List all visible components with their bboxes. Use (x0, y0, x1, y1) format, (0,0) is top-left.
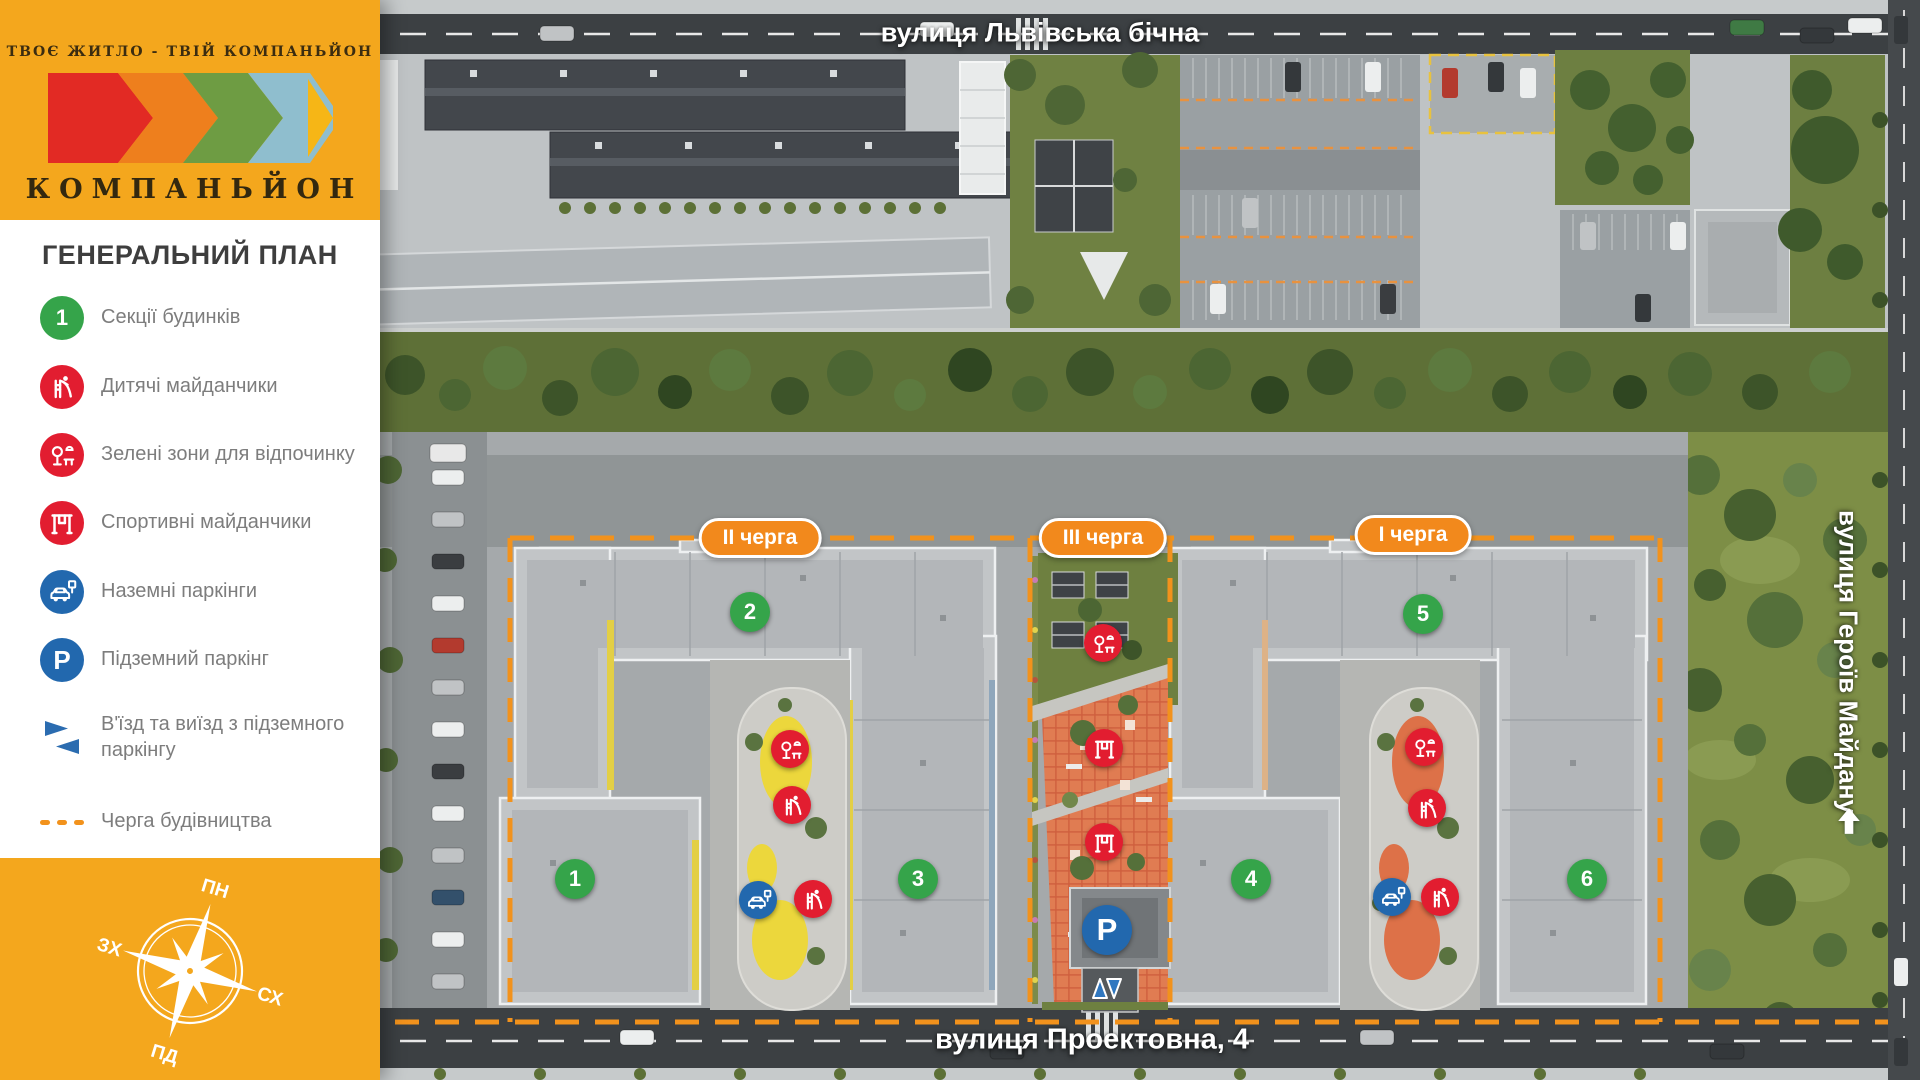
playground-icon (1408, 789, 1446, 827)
playground-icon (40, 365, 84, 409)
phase-badge-2[interactable]: II черга (699, 518, 822, 558)
building-marker-2[interactable]: 2 (730, 592, 770, 632)
building-marker-1[interactable]: 1 (555, 859, 595, 899)
legend-label: Підземний паркінг (101, 647, 269, 673)
compass-east-label: СХ (255, 983, 286, 1011)
street-label-proektovna: вулиця Проектовна, 4 (935, 1024, 1249, 1057)
building-marker-6[interactable]: 6 (1567, 859, 1607, 899)
legend-item-sections: 1 Секції будинків (40, 296, 364, 340)
street-label-heroiv-maidanu: вулиця Героїв Майдану (1833, 510, 1864, 814)
playground-icon (1421, 878, 1459, 916)
green-zone-icon (1405, 728, 1443, 766)
green-zone-icon (771, 730, 809, 768)
compass-west-label: ЗХ (94, 934, 124, 961)
brand-tagline: ТВОЄ ЖИТЛО - ТВІЙ КОМПАНЬЙОН (7, 44, 374, 60)
page-title: ГЕНЕРАЛЬНИЙ ПЛАН (42, 240, 338, 271)
legend-label: В'їзд та виїзд з підземного паркінгу (101, 712, 364, 763)
green-zone-icon (1084, 624, 1122, 662)
building-marker-3[interactable]: 3 (898, 859, 938, 899)
playground-icon (773, 786, 811, 824)
parking-entry-exit-icon (1086, 974, 1126, 1002)
legend-item-playgrounds: Дитячі майданчики (40, 365, 364, 409)
underground-parking-icon: P (1082, 905, 1132, 955)
phase-dashed-line-icon (40, 800, 84, 844)
genplan-page: вулиця Львівська бічна вулиця Проектовна… (0, 0, 1920, 1080)
playground-icon (794, 880, 832, 918)
legend-label: Дитячі майданчики (101, 374, 278, 400)
brand-logo-chevrons-icon (48, 73, 333, 163)
sport-ground-icon (1085, 823, 1123, 861)
site-plan-map: вулиця Львівська бічна вулиця Проектовна… (380, 0, 1920, 1080)
surface-parking-icon (40, 570, 84, 614)
parking-entry-exit-icon (40, 716, 84, 760)
surface-parking-icon (739, 881, 777, 919)
north-direction-arrow-icon (1835, 808, 1863, 834)
compass-block: ПН СХ ПД ЗХ (0, 858, 380, 1080)
building-marker-5[interactable]: 5 (1403, 594, 1443, 634)
legend-item-green-zones: Зелені зони для відпочинку (40, 433, 364, 477)
legend-label: Спортивні майданчики (101, 510, 311, 536)
phase-badge-1[interactable]: I черга (1355, 515, 1472, 555)
surface-parking-icon (1373, 878, 1411, 916)
legend-item-surface-parking: Наземні паркінги (40, 570, 364, 614)
phase-badge-3[interactable]: III черга (1039, 518, 1167, 558)
legend-label: Черга будівництва (101, 809, 272, 835)
legend-item-phase: Черга будівництва (40, 800, 364, 844)
green-zone-icon (40, 433, 84, 477)
compass-south-label: ПД (148, 1041, 181, 1069)
legend-item-underground-parking: P Підземний паркінг (40, 638, 364, 682)
building-marker-4[interactable]: 4 (1231, 859, 1271, 899)
brand-header: ТВОЄ ЖИТЛО - ТВІЙ КОМПАНЬЙОН КОМПАНЬЙОН (0, 0, 380, 220)
legend-label: Секції будинків (101, 305, 240, 331)
sport-ground-icon (40, 501, 84, 545)
legend-label: Зелені зони для відпочинку (101, 442, 355, 468)
sidebar: ТВОЄ ЖИТЛО - ТВІЙ КОМПАНЬЙОН КОМПАНЬЙОН … (0, 0, 380, 1080)
legend-item-sport: Спортивні майданчики (40, 501, 364, 545)
legend-label: Наземні паркінги (101, 579, 257, 605)
compass-rose-icon: ПН СХ ПД ЗХ (75, 858, 305, 1080)
street-label-lvivska: вулиця Львівська бічна (881, 18, 1200, 49)
section-number-icon: 1 (40, 296, 84, 340)
sport-ground-icon (1085, 729, 1123, 767)
brand-name: КОМПАНЬЙОН (26, 174, 364, 205)
underground-parking-icon: P (40, 638, 84, 682)
legend-item-entry-exit: В'їзд та виїзд з підземного паркінгу (40, 712, 364, 763)
compass-north-label: ПН (199, 875, 231, 903)
